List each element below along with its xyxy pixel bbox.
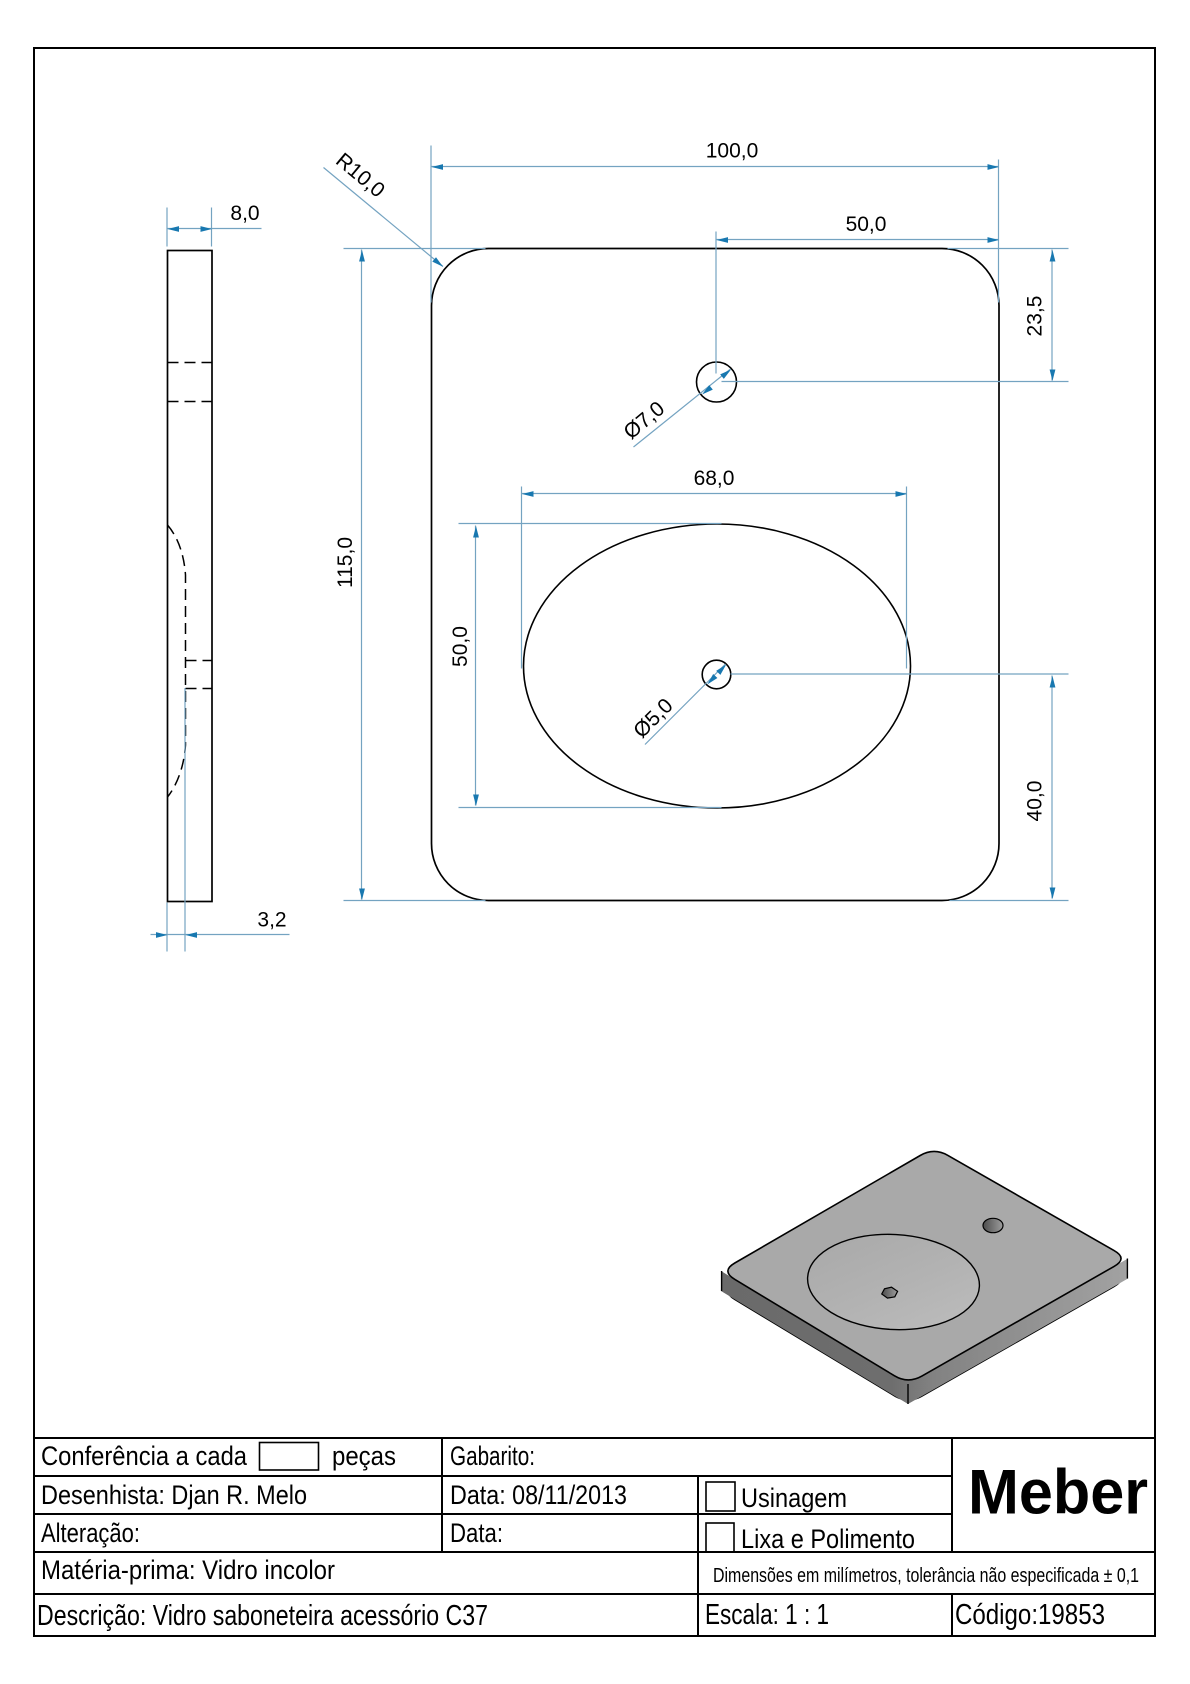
- svg-text:40,0: 40,0: [1024, 781, 1047, 822]
- svg-text:Usinagem: Usinagem: [741, 1483, 847, 1513]
- svg-text:Escala: 1 : 1: Escala: 1 : 1: [705, 1599, 829, 1631]
- svg-text:8,0: 8,0: [230, 202, 259, 225]
- svg-text:100,0: 100,0: [706, 140, 759, 163]
- svg-text:3,2: 3,2: [257, 909, 286, 932]
- svg-text:Meber: Meber: [968, 1458, 1148, 1528]
- svg-text:Lixa e Polimento: Lixa e Polimento: [741, 1524, 915, 1554]
- svg-text:Código:19853: Código:19853: [955, 1599, 1105, 1631]
- svg-text:50,0: 50,0: [449, 626, 472, 667]
- svg-text:Descrição: Vidro saboneteira a: Descrição: Vidro saboneteira acessório C…: [37, 1600, 488, 1632]
- svg-text:Dimensões em milímetros, toler: Dimensões em milímetros, tolerância não …: [713, 1564, 1139, 1587]
- svg-text:Matéria-prima: Vidro incolor: Matéria-prima: Vidro incolor: [41, 1555, 335, 1585]
- svg-text:68,0: 68,0: [694, 467, 735, 490]
- svg-text:peças: peças: [332, 1441, 396, 1471]
- svg-text:Data:: Data:: [450, 1518, 503, 1548]
- svg-text:Data: 08/11/2013: Data: 08/11/2013: [450, 1480, 627, 1510]
- svg-text:115,0: 115,0: [334, 537, 357, 588]
- svg-text:Alteração:: Alteração:: [41, 1518, 140, 1548]
- svg-text:Gabarito:: Gabarito:: [450, 1441, 535, 1471]
- svg-text:Conferência a cada: Conferência a cada: [41, 1441, 248, 1471]
- svg-text:50,0: 50,0: [846, 213, 887, 236]
- svg-text:23,5: 23,5: [1024, 296, 1047, 337]
- svg-text:Desenhista: Djan R. Melo: Desenhista: Djan R. Melo: [41, 1480, 307, 1510]
